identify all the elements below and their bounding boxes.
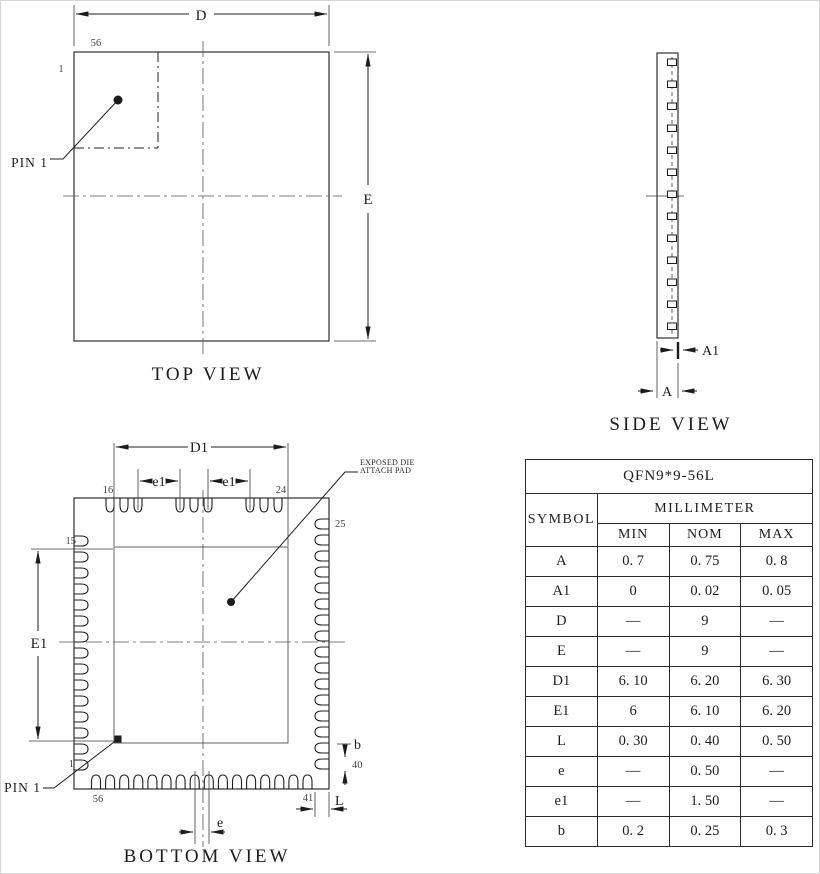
pin-pad-left bbox=[74, 584, 88, 594]
max-cell: 0. 8 bbox=[741, 547, 813, 577]
col-header-min: MIN bbox=[597, 524, 669, 547]
table-row: e1 — 1. 50 — bbox=[526, 787, 813, 817]
side-lead-bump bbox=[668, 147, 677, 154]
pin-pad-right bbox=[315, 743, 329, 753]
pin25-label: 25 bbox=[335, 519, 346, 530]
side-lead-bump bbox=[668, 169, 677, 176]
bottom-view: D1 e1 e1 E1 EXPOSED DIE ATTACH PAD PIN 1… bbox=[4, 440, 415, 867]
pin41-label: 41 bbox=[303, 793, 314, 804]
max-cell: — bbox=[741, 607, 813, 637]
table-row: L 0. 30 0. 40 0. 50 bbox=[526, 727, 813, 757]
bottom-view-bottom-edge-pads bbox=[92, 775, 313, 789]
table-title-row: QFN9*9-56L bbox=[526, 460, 813, 494]
side-lead-bump bbox=[668, 59, 677, 66]
pin-pad-right bbox=[315, 663, 329, 673]
pin-pad-bottom bbox=[261, 775, 270, 789]
pin-pad-left bbox=[74, 760, 88, 770]
max-cell: 6. 30 bbox=[741, 667, 813, 697]
symbol-cell: b bbox=[526, 817, 598, 847]
dim-label-b: b bbox=[354, 738, 361, 753]
top-view-title: TOP VIEW bbox=[152, 364, 265, 385]
bottom-view-title: BOTTOM VIEW bbox=[124, 846, 291, 867]
nom-cell: 0. 40 bbox=[669, 727, 741, 757]
pin-pad-right bbox=[315, 711, 329, 721]
pin1-label: 1 bbox=[69, 759, 74, 770]
pin-pad-left bbox=[74, 664, 88, 674]
symbol-cell: L bbox=[526, 727, 598, 757]
max-cell: — bbox=[741, 637, 813, 667]
dim-label-E: E bbox=[363, 192, 372, 208]
nom-cell: 9 bbox=[669, 637, 741, 667]
nom-cell: 6. 20 bbox=[669, 667, 741, 697]
bottom-view-pin1-callout: PIN 1 bbox=[4, 780, 41, 795]
pin15-label: 15 bbox=[66, 536, 77, 547]
max-cell: — bbox=[741, 787, 813, 817]
pin-pad-bottom bbox=[303, 775, 312, 789]
table-row: b 0. 2 0. 25 0. 3 bbox=[526, 817, 813, 847]
min-cell: 6 bbox=[597, 697, 669, 727]
min-cell: 6. 10 bbox=[597, 667, 669, 697]
pin-pad-bottom bbox=[233, 775, 242, 789]
max-cell: 0. 05 bbox=[741, 577, 813, 607]
min-cell: — bbox=[597, 757, 669, 787]
top-view-package-body bbox=[74, 52, 329, 341]
dim-label-A1: A1 bbox=[702, 344, 719, 359]
table-title: QFN9*9-56L bbox=[526, 460, 813, 494]
nom-cell: 1. 50 bbox=[669, 787, 741, 817]
unit-header: MILLIMETER bbox=[597, 494, 812, 524]
min-cell: 0. 30 bbox=[597, 727, 669, 757]
min-cell: — bbox=[597, 787, 669, 817]
pin-pad-right bbox=[315, 519, 329, 529]
pin24-label: 24 bbox=[276, 485, 287, 496]
side-lead-bump bbox=[668, 213, 677, 220]
symbol-cell: e bbox=[526, 757, 598, 787]
pin-pad-left bbox=[74, 552, 88, 562]
col-header-max: MAX bbox=[741, 524, 813, 547]
pin-pad-left bbox=[74, 536, 88, 546]
min-cell: 0. 2 bbox=[597, 817, 669, 847]
pin-pad-left bbox=[74, 680, 88, 690]
pin-pad-right bbox=[315, 567, 329, 577]
pin-pad-right bbox=[315, 647, 329, 657]
min-cell: 0 bbox=[597, 577, 669, 607]
pin-pad-left bbox=[74, 648, 88, 658]
max-cell: 0. 50 bbox=[741, 727, 813, 757]
dimension-table: QFN9*9-56L SYMBOL MILLIMETER MIN NOM MAX… bbox=[525, 459, 813, 847]
nom-cell: 0. 50 bbox=[669, 757, 741, 787]
nom-cell: 0. 75 bbox=[669, 547, 741, 577]
nom-cell: 9 bbox=[669, 607, 741, 637]
bottom-view-pin1-leader bbox=[43, 739, 118, 788]
pin-pad-right bbox=[315, 599, 329, 609]
dim-label-E1: E1 bbox=[31, 636, 48, 652]
side-lead-bump bbox=[668, 279, 677, 286]
dim-label-e: e bbox=[217, 816, 223, 831]
nom-cell: 6. 10 bbox=[669, 697, 741, 727]
max-cell: — bbox=[741, 757, 813, 787]
side-lead-bump bbox=[668, 191, 677, 198]
pin-pad-right bbox=[315, 759, 329, 769]
table-header-row: SYMBOL MILLIMETER bbox=[526, 494, 813, 524]
col-header-nom: NOM bbox=[669, 524, 741, 547]
dim-label-D1: D1 bbox=[190, 440, 208, 456]
side-lead-bump bbox=[668, 125, 677, 132]
pin-pad-right bbox=[315, 695, 329, 705]
nom-cell: 0. 25 bbox=[669, 817, 741, 847]
pin-pad-left bbox=[74, 696, 88, 706]
min-cell: — bbox=[597, 637, 669, 667]
symbol-cell: E bbox=[526, 637, 598, 667]
table-row: A 0. 7 0. 75 0. 8 bbox=[526, 547, 813, 577]
pin-pad-left bbox=[74, 712, 88, 722]
pin-pad-right bbox=[315, 535, 329, 545]
pin-pad-top bbox=[260, 498, 268, 512]
dim-label-A: A bbox=[662, 385, 673, 400]
side-view-title: SIDE VIEW bbox=[609, 414, 732, 435]
nom-cell: 0. 02 bbox=[669, 577, 741, 607]
table-row: e — 0. 50 — bbox=[526, 757, 813, 787]
symbol-cell: e1 bbox=[526, 787, 598, 817]
pin-pad-top bbox=[106, 498, 114, 512]
pin-pad-left bbox=[74, 744, 88, 754]
symbol-cell: A bbox=[526, 547, 598, 577]
bottom-view-top-edge-pads bbox=[106, 498, 282, 512]
table-row: D1 6. 10 6. 20 6. 30 bbox=[526, 667, 813, 697]
dimension-table-grid: QFN9*9-56L SYMBOL MILLIMETER MIN NOM MAX… bbox=[525, 459, 813, 847]
table-row: D — 9 — bbox=[526, 607, 813, 637]
pin-pad-top bbox=[274, 498, 282, 512]
qfn-package-outline-drawing: D E 56 1 PIN 1 TOP VIEW A1 A SIDE VIEW bbox=[0, 0, 820, 874]
side-lead-bump bbox=[668, 81, 677, 88]
max-cell: 6. 20 bbox=[741, 697, 813, 727]
top-view-pin56-label: 56 bbox=[91, 38, 102, 49]
pin-pad-right bbox=[315, 551, 329, 561]
dim-label-D: D bbox=[196, 8, 207, 24]
bottom-view-left-edge-pads bbox=[74, 536, 88, 770]
pin-pad-bottom bbox=[289, 775, 298, 789]
dim-label-e1-right: e1 bbox=[222, 475, 235, 490]
pin-pad-top bbox=[120, 498, 128, 512]
symbol-cell: A1 bbox=[526, 577, 598, 607]
symbol-cell: E1 bbox=[526, 697, 598, 727]
pin-pad-bottom bbox=[162, 775, 171, 789]
pin-pad-bottom bbox=[106, 775, 115, 789]
pin-pad-left bbox=[74, 728, 88, 738]
max-cell: 0. 3 bbox=[741, 817, 813, 847]
symbol-cell: D bbox=[526, 607, 598, 637]
side-view: A1 A SIDE VIEW bbox=[609, 53, 732, 435]
pin-pad-right bbox=[315, 679, 329, 689]
side-lead-bump bbox=[668, 235, 677, 242]
pin-pad-bottom bbox=[134, 775, 143, 789]
pin-pad-left bbox=[74, 632, 88, 642]
min-cell: — bbox=[597, 607, 669, 637]
top-view-pin1-callout: PIN 1 bbox=[11, 155, 48, 170]
pin-pad-bottom bbox=[148, 775, 157, 789]
side-lead-bump bbox=[668, 301, 677, 308]
pin-pad-right bbox=[315, 631, 329, 641]
pin-pad-top bbox=[190, 498, 198, 512]
side-lead-bump bbox=[668, 323, 677, 330]
side-lead-bump bbox=[668, 103, 677, 110]
top-view: D E 56 1 PIN 1 TOP VIEW bbox=[11, 5, 376, 385]
symbol-cell: D1 bbox=[526, 667, 598, 697]
pin-pad-bottom bbox=[92, 775, 101, 789]
pin-pad-bottom bbox=[247, 775, 256, 789]
top-view-pin1-label: 1 bbox=[58, 64, 63, 75]
dim-label-L: L bbox=[335, 794, 344, 809]
pin-pad-right bbox=[315, 727, 329, 737]
bottom-view-package-body bbox=[74, 498, 329, 789]
table-row: A1 0 0. 02 0. 05 bbox=[526, 577, 813, 607]
side-lead-bump bbox=[668, 257, 677, 264]
pin16-label: 16 bbox=[103, 485, 114, 496]
pin56-label: 56 bbox=[93, 794, 104, 805]
min-cell: 0. 7 bbox=[597, 547, 669, 577]
pin-pad-left bbox=[74, 600, 88, 610]
symbol-header: SYMBOL bbox=[526, 494, 598, 547]
dim-label-e1-left: e1 bbox=[152, 475, 165, 490]
pin-pad-bottom bbox=[176, 775, 185, 789]
pin-pad-right bbox=[315, 583, 329, 593]
pin-pad-right bbox=[315, 615, 329, 625]
pin-pad-bottom bbox=[120, 775, 129, 789]
pin-pad-left bbox=[74, 616, 88, 626]
table-row: E1 6 6. 10 6. 20 bbox=[526, 697, 813, 727]
exposed-pad-note-line2: ATTACH PAD bbox=[360, 466, 411, 475]
table-row: E — 9 — bbox=[526, 637, 813, 667]
pin1-leader-line bbox=[50, 100, 118, 159]
bottom-view-right-edge-pads bbox=[315, 519, 329, 769]
pin40-label: 40 bbox=[352, 760, 363, 771]
pin-pad-bottom bbox=[218, 775, 227, 789]
pin-pad-left bbox=[74, 568, 88, 578]
exposed-die-attach-pad bbox=[114, 547, 288, 743]
pin-pad-bottom bbox=[275, 775, 284, 789]
